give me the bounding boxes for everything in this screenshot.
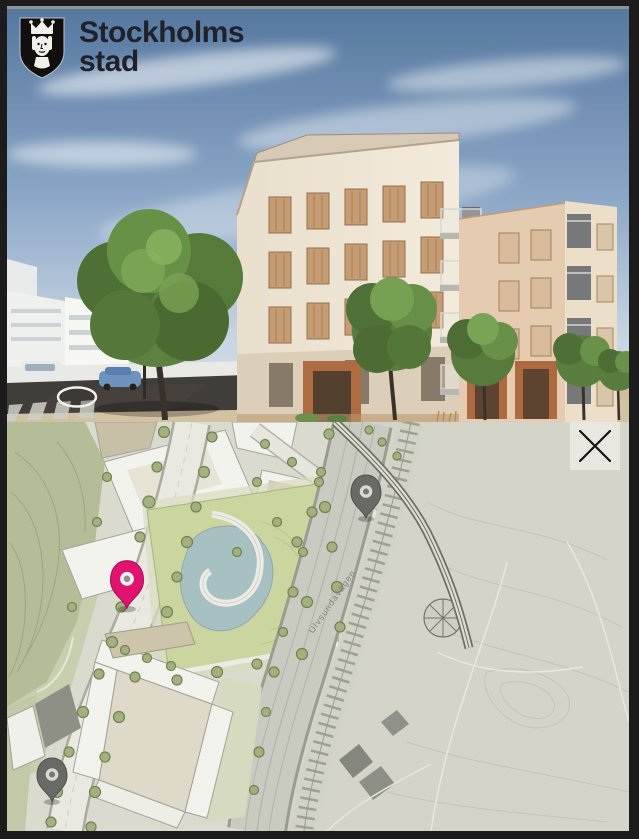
stockholm-crest-icon <box>17 16 67 80</box>
stockholm-stad-logo: Stockholms stad <box>17 16 244 80</box>
close-icon <box>577 428 613 464</box>
render-viewport[interactable]: Stockholms stad <box>7 9 629 422</box>
site-plan-drawing: Ulvsundavägen <box>7 422 629 831</box>
close-button[interactable] <box>570 422 620 470</box>
site-plan-map[interactable]: Ulvsundavägen <box>7 422 629 831</box>
logo-text-line2: stad <box>79 47 244 76</box>
app-window: Stockholms stad <box>7 6 629 831</box>
logo-text-line1: Stockholms <box>79 18 244 47</box>
side-wing-building <box>459 203 565 422</box>
move-target-ring-icon[interactable] <box>58 388 96 407</box>
main-building <box>237 133 482 422</box>
